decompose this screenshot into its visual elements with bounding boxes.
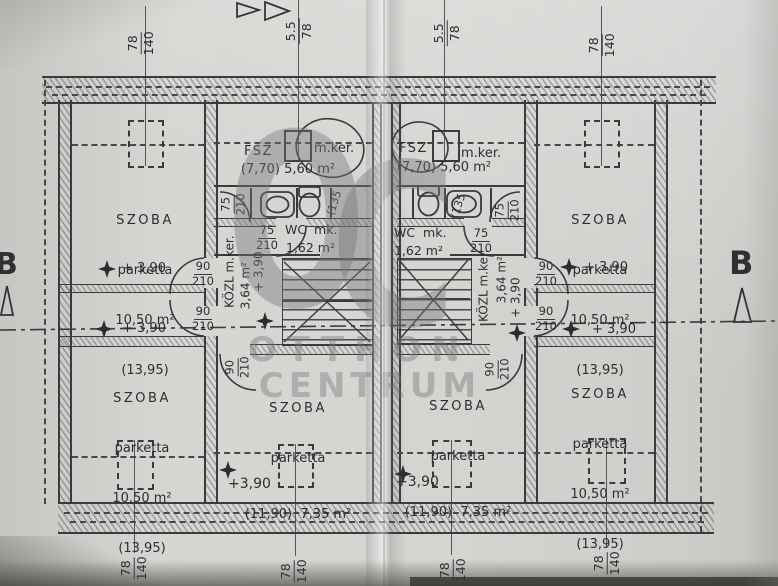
section-arrow-icon <box>237 3 259 17</box>
section-arrow-icon <box>734 288 751 322</box>
door-size-label: 75 210 <box>466 227 496 256</box>
room-name: SZOBA <box>93 213 197 230</box>
door-height: 210 <box>470 242 492 256</box>
section-arrow-icon <box>1 286 13 315</box>
dim-height: 140 <box>142 31 157 55</box>
room-area: 10,50 m² <box>548 487 652 504</box>
section-marker-b-left: B <box>0 246 18 284</box>
dim-height: 140 <box>295 559 310 583</box>
door-size-label: 75 210 <box>494 188 523 232</box>
dim-roof-window-top-mid-left: 5.5 78 <box>284 8 315 54</box>
dim-width: 78 <box>279 560 295 582</box>
door-width: 90 <box>537 305 556 320</box>
room-floor: parketta <box>228 451 368 468</box>
room-floor: parketta <box>548 437 652 454</box>
door-height: 210 <box>509 199 523 221</box>
dim-height: 78 <box>300 23 315 39</box>
door-size-label: 90 210 <box>531 305 561 334</box>
door-width: 90 <box>194 305 213 320</box>
door-height: 210 <box>192 320 214 334</box>
room-name: SZOBA <box>548 387 652 404</box>
dim-height: 78 <box>448 25 463 41</box>
room-label-szoba-bottom-right: SZOBA parketta 10,50 m² (13,95) <box>548 354 652 586</box>
level-mark: + 3,90 <box>122 261 166 278</box>
dim-width: 78 <box>126 32 142 54</box>
dim-roof-window-top-mid-right: 5.5 78 <box>432 10 463 56</box>
door-height: 210 <box>192 275 214 289</box>
dim-roof-window-top-left: 78 140 <box>126 20 157 66</box>
room-area-alt: (13,95) <box>548 537 652 554</box>
door-width: 90 <box>537 260 556 275</box>
dim-height: 140 <box>603 33 618 57</box>
door-height: 210 <box>535 275 557 289</box>
door-height: 210 <box>499 358 513 380</box>
floor-plan-photo: 78 140 5.5 78 5.5 78 78 140 78 140 78 14… <box>0 0 778 586</box>
door-height: 210 <box>535 320 557 334</box>
level-mark: + 3,90 <box>584 260 628 277</box>
watermark-text-centrum: CENTRUM <box>250 366 490 406</box>
door-width: 75 <box>494 201 509 220</box>
room-floor: parketta <box>388 449 528 466</box>
dim-width: 5.5 <box>284 18 300 44</box>
watermark-logo-c: C <box>330 136 457 361</box>
room-area: (11,90) 7,35 m² <box>228 507 368 524</box>
door-width: 90 <box>194 260 213 275</box>
room-label-szoba-bottom-left: SZOBA parketta 10,50 m² (13,95) <box>88 358 196 586</box>
watermark-text-otthon: OTTHON <box>248 330 468 370</box>
dim-height: 140 <box>454 558 469 582</box>
room-area: 10,50 m² <box>88 491 196 508</box>
level-mark: +3,90 <box>396 474 439 492</box>
level-mark: + 3,90 <box>122 321 166 338</box>
room-name: SZOBA <box>548 213 652 230</box>
level-mark: +3,90 <box>228 476 271 494</box>
door-width: 75 <box>472 227 491 242</box>
dim-width: 78 <box>587 34 603 56</box>
dim-width: 5.5 <box>432 20 448 46</box>
level-mark: + 3,90 <box>592 322 636 339</box>
room-area: (11,90) 7,35 m² <box>388 505 528 522</box>
door-size-label: 90 210 <box>531 260 561 289</box>
room-area-alt: (13,95) <box>88 541 196 558</box>
door-size-label: 90 210 <box>188 305 218 334</box>
hall-level-right: + 3,90 <box>508 263 523 333</box>
dim-width: 78 <box>438 559 454 581</box>
room-floor: parketta <box>88 441 196 458</box>
door-size-label: 90 210 <box>188 260 218 289</box>
section-marker-b-right: B <box>729 243 753 284</box>
room-name: SZOBA <box>88 391 196 408</box>
dim-roof-window-top-right: 78 140 <box>587 22 618 68</box>
